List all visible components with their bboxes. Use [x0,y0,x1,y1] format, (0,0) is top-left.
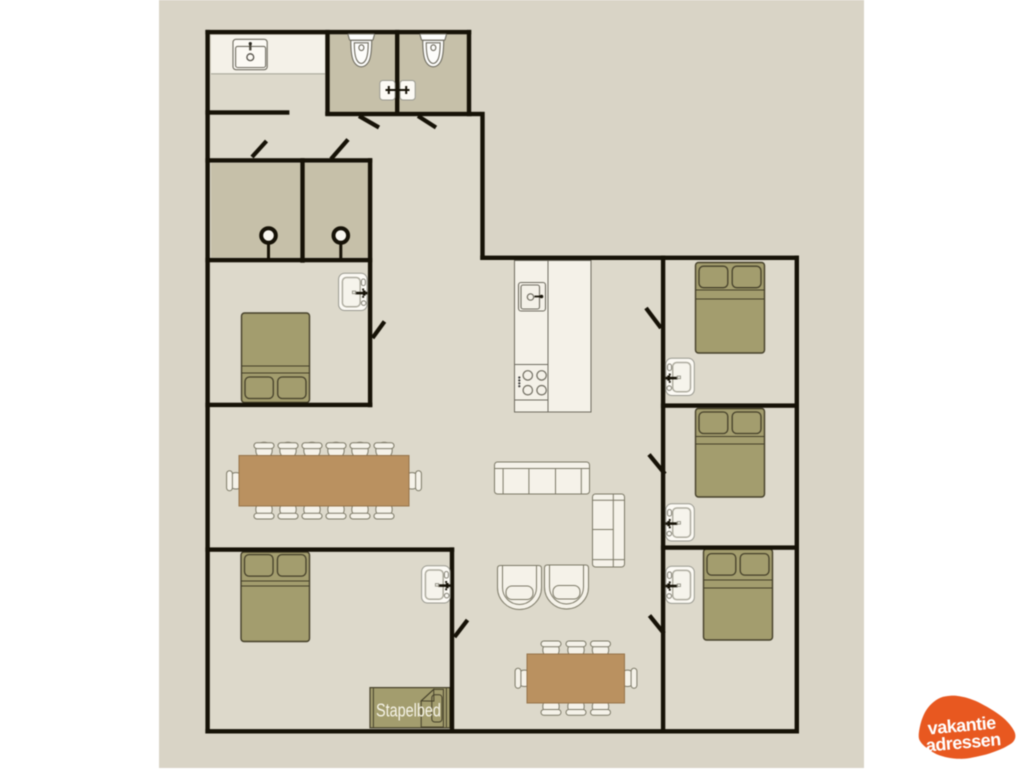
svg-text:Stapelbed: Stapelbed [376,700,441,721]
